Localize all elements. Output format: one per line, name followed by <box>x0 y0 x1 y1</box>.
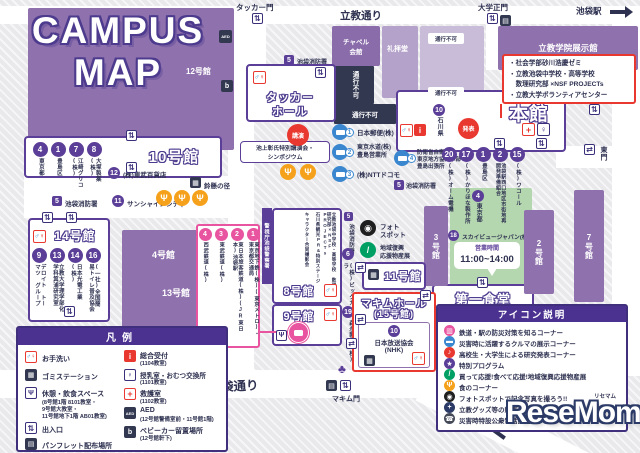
booth-number: 1 <box>51 142 66 157</box>
station-label-top: 池袋駅 <box>576 5 602 17</box>
icon-legend-label: 食のコーナー <box>459 382 498 392</box>
entrance-exit-icon: ⇅ <box>494 138 505 149</box>
no-passage-block: 通行不可 <box>334 66 374 104</box>
legend-item-sub: (12号館軒下) <box>140 434 172 442</box>
bussan-icon: / <box>360 242 376 258</box>
fire-station-number: 5 <box>52 196 62 206</box>
presentation-icon: ♪ <box>444 347 455 358</box>
entrance-exit-icon: ⇄ <box>355 314 366 325</box>
booth-label: (株)オーム電機 <box>446 163 452 212</box>
building-label-chapel-kaikan-2: 会館 <box>350 46 363 56</box>
fleur-de-lis-icon: ♣ <box>338 362 346 376</box>
vehicle-label: 日本郵便(株) <box>357 127 394 137</box>
restroom-icon: ♂♀ <box>253 71 266 84</box>
female-glyph: ♀ <box>31 354 36 360</box>
booth-toshima: 1 豊島区 <box>49 142 67 176</box>
no-passage-badge: 通行不可 <box>428 33 464 44</box>
building-label-4: 4号館 <box>152 248 175 261</box>
nursing-room-icon: ♀ <box>124 369 136 381</box>
no-passage-label: 通行不可 <box>349 71 359 99</box>
booth-seibu: 4 西武鉄道(株) <box>197 228 213 284</box>
restroom-icon: ♂♀ <box>400 124 413 137</box>
hours-value: 11:00~14:00 <box>454 252 520 266</box>
first-aid-icon: + <box>522 123 535 136</box>
pamphlet-icon: ▤ <box>326 380 337 391</box>
booth-tokyo-green: 4 東京都 <box>470 190 486 223</box>
building-label-exhibition: 立教学院展示館 <box>538 42 598 54</box>
booth-label: 石川県 <box>436 117 442 137</box>
trash-station-icon: ▦ <box>190 177 201 188</box>
exhibitor-callout-box: ・社会学部砂川浩慶ゼミ ・立教池袋中学校・高等学校 数理研究部 ×NSF PRO… <box>502 54 636 104</box>
booth-label: 日本光電工業(株) <box>69 264 81 312</box>
food-corner-icon: Ψ <box>174 190 190 206</box>
photo-spot-icon: ◉ <box>444 391 455 402</box>
entrance-exit-icon: ⇅ <box>315 67 326 78</box>
vehicle-label: (株)NTTドコモ <box>357 169 400 179</box>
gate-label-tucker: タッカー門 <box>236 2 274 13</box>
booth-label: 東京都 <box>475 203 481 223</box>
first-aid-icon: + <box>124 388 136 400</box>
vehicle-number: 3 <box>345 170 354 179</box>
restroom-icon: ♂♀ <box>324 284 337 297</box>
building-label-14: 14号館 <box>46 228 104 243</box>
booth-number: 14 <box>68 248 83 263</box>
bubble-tail <box>487 268 497 276</box>
booth-toilet-assoc: 16 (一社)全国簡易トイレ普及協会 <box>84 248 102 312</box>
vehicle-number: 2 <box>345 148 354 157</box>
no-passage-badge: 通行不可 <box>428 87 464 98</box>
legend-item-sub: (1102教室) <box>140 397 167 405</box>
aed-icon: AED <box>219 30 232 43</box>
booth-number-nhk: 10 <box>388 325 400 337</box>
booth-redevelopment: 2 池袋駅西口地区市街地再開発準備組合 <box>491 147 509 227</box>
booth-number: 4 <box>33 142 48 157</box>
female-glyph: ♀ <box>407 127 412 134</box>
legend-title: 凡例 <box>18 328 226 345</box>
building-label-13: 13号館 <box>162 286 190 299</box>
police-strip: 警視庁池袋警察署 <box>262 208 272 284</box>
icon-legend-label: 高校生・大学生による研究発表コーナー <box>459 349 576 359</box>
fire-station-number: 5 <box>394 180 404 190</box>
page-title-line1: CAMPUS <box>18 10 218 52</box>
entrance-exit-icon: ⇄ <box>346 338 357 349</box>
female-glyph: ♀ <box>419 355 424 362</box>
building-label-2: 2号館 <box>534 239 545 266</box>
entrance-exit-icon: ⇅ <box>536 138 547 149</box>
booth-wacoal: 15 (株)ワコール <box>508 147 526 206</box>
no-passage-label: 通行不可 <box>352 109 378 119</box>
booth-nihon-kohden: 14 日本光電工業(株) <box>66 248 84 312</box>
food-corner-icon: Ψ <box>192 190 208 206</box>
trash-station-icon: ▦ <box>25 369 37 381</box>
building-3: 3号館 <box>424 206 448 286</box>
booth-label: (株)ワコール <box>514 163 520 206</box>
gate-label-main: 大学正門 <box>478 2 508 13</box>
booth-label: 江崎グリコ(株) <box>70 158 82 192</box>
building-label-tucker-hall-2: ホール <box>250 104 330 117</box>
photo-spot-label-2: スポット <box>380 229 406 239</box>
icon-legend-label: 特別プログラム <box>459 360 504 370</box>
booth-label: デロイト トーマツ グループ <box>33 264 45 312</box>
railway-number: 2 <box>231 228 244 241</box>
entrance-exit-icon: ⇅ <box>487 13 498 24</box>
booth-label: (一社)全国簡易トイレ普及協会 <box>87 264 99 312</box>
path-label-suzukake: 鈴懸の径 <box>204 180 230 190</box>
no-passage-block: 通行不可 <box>334 104 396 124</box>
female-glyph: ♀ <box>331 287 336 294</box>
booth-number-sunshine: 11 <box>112 195 124 207</box>
booth-deloitte: 9 デロイト トーマツ グループ <box>30 248 48 312</box>
booth-label-skyview: スカイビュージャパン(株) <box>462 232 530 241</box>
building-chapel-kaikan: チャペル 会館 <box>332 26 380 66</box>
callout-line: ・立教大学ボランティアセンター <box>509 91 629 102</box>
railway-label: 東武鉄道(株) <box>218 242 223 284</box>
entrance-exit-icon: ⇄ <box>584 144 595 155</box>
railway-number: 1 <box>247 228 260 241</box>
rest-space-icon: Ψ <box>25 387 37 399</box>
entrance-exit-icon: ⇅ <box>42 212 53 223</box>
booth-number: 2 <box>493 147 508 162</box>
entrance-exit-icon: ⇅ <box>25 422 37 434</box>
stroller-icon: b <box>124 426 136 438</box>
fire-station-label: 池袋消防署 <box>65 198 98 208</box>
restroom-icon: ♂♀ <box>33 230 46 243</box>
legend-item-sub: (12号館警備室前・11号館1階) <box>140 415 214 423</box>
female-glyph: ♀ <box>260 74 265 81</box>
lecture-label-2: シンポジウム <box>268 152 303 161</box>
vehicle-exhibit-icon: ▬ <box>444 336 455 347</box>
booth-glico: 7 江崎グリコ(株) <box>67 142 85 192</box>
booth-number: 10 <box>433 104 445 116</box>
booth-number: 20 <box>442 147 457 162</box>
booth-number-tobu: 12 <box>108 167 120 179</box>
building-label-7: 7号館 <box>584 233 595 260</box>
female-glyph: ♀ <box>40 233 45 240</box>
booth-number: 17 <box>459 147 474 162</box>
rest-space-icon: Ψ <box>276 330 287 341</box>
booth-number: 15 <box>510 147 525 162</box>
bussan-label-2: 応援物産展 <box>380 251 410 260</box>
booth-number: 1 <box>476 147 491 162</box>
entrance-exit-icon: ⇅ <box>66 212 77 223</box>
street-label-rikkyo: 立教通り <box>340 8 382 23</box>
icon-legend-title: アイコン説明 <box>438 306 626 322</box>
stroller-icon: b <box>221 80 233 92</box>
booth-number: 9 <box>32 248 47 263</box>
food-corner-icon: Ψ <box>156 190 172 206</box>
photo-spot-icon: ◉ <box>360 220 376 236</box>
railway-number: 4 <box>199 228 212 241</box>
callout-connector-line <box>500 104 502 118</box>
legend-item-sub: 11号館地下1階 AB01教室) <box>42 412 107 420</box>
building-label-11: 11号館 <box>382 269 424 283</box>
page-title-line2: MAP <box>18 52 218 94</box>
icon-legend-label: 鉄道・駅の防災対策を知るコーナー <box>459 327 563 337</box>
booth-label: (株)かりほな製作所 <box>463 163 469 224</box>
booth-tokyo: 4 東京都 <box>31 142 49 176</box>
booth-number-biccamera: 6 <box>342 248 354 260</box>
legend-item-label: ゴミステーション <box>42 372 98 382</box>
vehicle-number: 4 <box>407 154 416 163</box>
railway-corner-icon <box>288 322 309 343</box>
female-glyph: ♀ <box>331 311 336 318</box>
legend-item-sub: (1104教室) <box>140 359 167 367</box>
hours-bubble: 営業時間 11:00~14:00 <box>454 242 520 269</box>
booth-rikkyo-science: 13 立教大学理学部化学科箕浦研究室 <box>48 248 66 312</box>
booth-label-nhk-1: 日本放送協会 <box>360 338 428 346</box>
railway-corner-icon: ▥ <box>444 325 455 336</box>
railway-label: 東日本旅客鉄道(株)(JR東日本)池袋駅 <box>232 242 243 340</box>
stage-program-line: 立教池袋中学校・高等学校 数理研究部×NSF PROJECTs <box>322 212 336 288</box>
building-7: 7号館 <box>574 190 604 302</box>
entrance-exit-icon: ⇄ <box>355 262 366 273</box>
goods-sale-icon: + <box>444 402 455 413</box>
booth-label: 東京都 <box>37 158 43 176</box>
vehicle-label: 豊島営業所 <box>357 150 387 159</box>
entrance-exit-icon: ⇅ <box>477 277 488 288</box>
booth-ishikawa: 10 石川県 <box>430 104 448 137</box>
building-label-chapel: 礼拝堂 <box>387 44 408 54</box>
building-label-chapel-kaikan-1: チャペル <box>343 36 369 46</box>
watermark: ReseMom. <box>506 396 640 430</box>
railway-number: 3 <box>215 228 228 241</box>
booth-toshima-2: 1 豊島区 <box>474 147 492 181</box>
railway-label: 東京地下鉄(株)(東京メトロ)・東京都交通局 <box>248 242 259 340</box>
icon-legend-label: 買って応援!食べて応援!地域復興応援物産展 <box>459 371 586 381</box>
booth-label: 豊島区 <box>55 158 61 176</box>
legend-item-label: AED <box>140 407 155 414</box>
booth-label: 立教大学理学部化学科箕浦研究室 <box>51 264 63 312</box>
pamphlet-icon: ▤ <box>500 15 511 26</box>
fire-station-number: 5 <box>344 212 353 221</box>
presentation-badge: 発表 <box>458 118 479 139</box>
booth-tobu-railway: 3 東武鉄道(株) <box>213 228 229 284</box>
campus-map: 立教通り タッカー門 ⇅ 大学正門 ⇅ ▤ 池袋駅 12号館 AED b CAM… <box>0 0 640 453</box>
icon-legend-label: 災害時に活躍するクルマの展示コーナー <box>459 338 576 348</box>
pamphlet-icon: ▤ <box>25 438 37 450</box>
building-label-makim-2: (15号館) <box>354 308 434 319</box>
reception-icon: i <box>414 124 426 136</box>
lecture-badge: 講演 <box>287 124 309 146</box>
building-label-8: 8号館 <box>276 284 322 298</box>
police-label: 警視庁池袋警察署 <box>264 223 271 269</box>
entrance-exit-icon: ⇅ <box>340 380 351 391</box>
arrow-right-icon <box>610 10 626 14</box>
food-corner-icon: Ψ <box>300 164 316 180</box>
public-phone-icon: ☎ <box>444 413 455 424</box>
entrance-exit-icon: ⇅ <box>126 130 137 141</box>
hours-label: 営業時間 <box>454 242 520 252</box>
callout-line: 数理研究部 ×NSF PROJECTs <box>509 80 629 91</box>
booth-number: 8 <box>87 142 102 157</box>
stage-program-line: 石川県観光PR&特別ステージ <box>310 212 320 284</box>
booth-number: 13 <box>50 248 65 263</box>
trash-station-icon: ▦ <box>368 269 379 280</box>
food-corner-icon: Ψ <box>280 164 296 180</box>
trash-station-icon: ▦ <box>364 355 375 366</box>
restroom-icon: ♂♀ <box>412 352 425 365</box>
building-chapel <box>382 26 418 98</box>
legend-item-sub: (1101教室) <box>140 378 167 386</box>
legend-item-label: パンフレット配布場所 <box>42 441 112 451</box>
building-2: 2号館 <box>524 210 554 294</box>
booth-label: 池袋駅西口地区市街地再開発準備組合 <box>495 163 506 227</box>
building-label-10: 10号館 <box>130 146 218 166</box>
nursing-room-icon: ♀ <box>537 123 550 136</box>
building-label-tucker-hall-1: タッカー <box>250 90 330 103</box>
callout-line: ・立教池袋中学校・高等学校 <box>509 70 629 81</box>
aed-icon: AED <box>124 407 136 419</box>
lecture-label-1: 池上彰氏特別講演会・ <box>256 143 314 152</box>
lecture-box: 池上彰氏特別講演会・ シンポジウム <box>240 141 330 163</box>
booth-jr-east: 2 東日本旅客鉄道(株)(JR東日本)池袋駅 <box>229 228 245 340</box>
building-label-3: 3号館 <box>431 233 442 260</box>
food-corner-icon: Ψ <box>444 380 455 391</box>
building-label-9: 9号館 <box>276 309 322 322</box>
booth-number: 16 <box>86 248 101 263</box>
fire-station-label: 池袋消防署 <box>406 181 436 190</box>
restroom-icon: ♂♀ <box>324 308 337 321</box>
entrance-exit-icon: ⇅ <box>64 306 75 317</box>
booth-otsuka: 8 大塚製薬(株) <box>85 142 103 192</box>
booth-number: 4 <box>472 190 484 202</box>
restroom-icon: ♂♀ <box>25 351 37 363</box>
entrance-exit-icon: ⇄ <box>420 290 431 301</box>
booth-tokyo-metro: 1 東京地下鉄(株)(東京メトロ)・東京都交通局 <box>245 228 261 340</box>
entrance-exit-icon: ⇅ <box>252 13 263 24</box>
booth-number-skyview: 18 <box>448 230 459 241</box>
vehicle-number: 1 <box>345 128 354 137</box>
legend-box: 凡例 ♂♀ お手洗い ▦ ゴミステーション Ψ 休憩・飲食スペース (8号館1階… <box>16 326 228 452</box>
booth-label: 豊島区 <box>480 163 486 181</box>
booth-label: 大塚製薬(株) <box>88 158 100 192</box>
callout-line: ・社会学部砂川浩慶ゼミ <box>509 59 629 70</box>
legend-item-label: お手洗い <box>42 354 70 364</box>
legend-item-label: 出入口 <box>42 425 63 435</box>
special-program-icon: ★ <box>444 358 455 369</box>
entrance-exit-icon: ⇅ <box>126 162 137 173</box>
gate-label-makimu: マキム門 <box>322 394 370 404</box>
railway-label: 西武鉄道(株) <box>202 242 207 284</box>
reception-icon: i <box>124 350 136 362</box>
gate-label-east: 東門 <box>598 146 608 161</box>
stage-program-line: キャラクター合同撮影会 <box>299 212 309 267</box>
booth-ohm: 20 (株)オーム電機 <box>440 147 458 212</box>
booth-number: 7 <box>69 142 84 157</box>
entrance-exit-icon: ⇅ <box>589 104 600 115</box>
bussan-icon: / <box>444 369 455 380</box>
